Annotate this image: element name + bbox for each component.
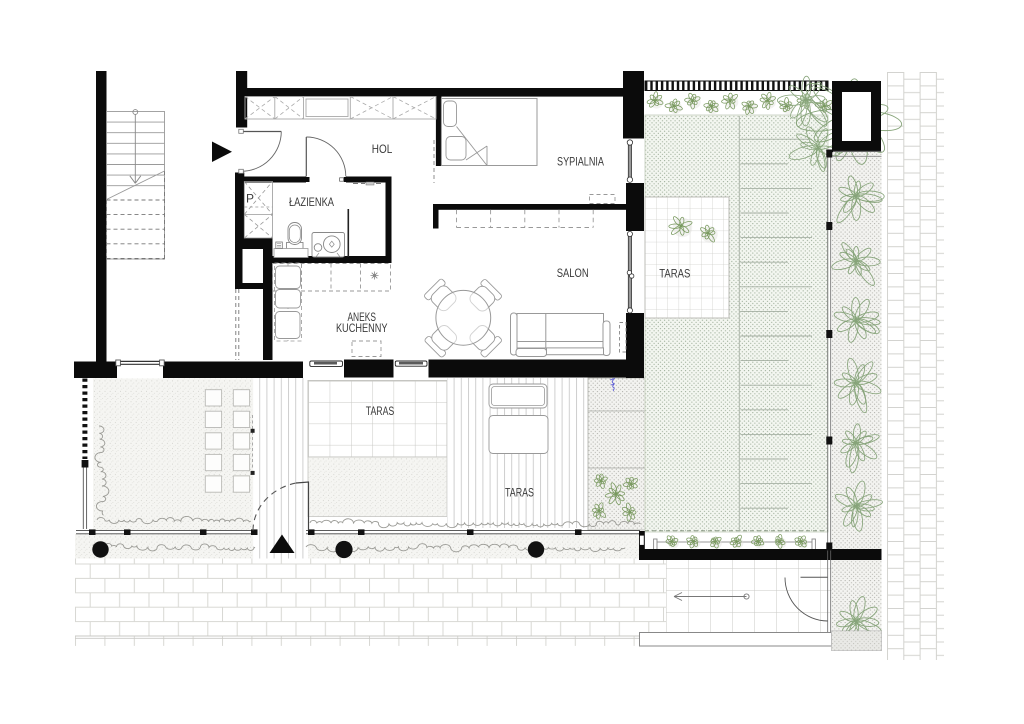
svg-text:ŁAZIENKA: ŁAZIENKA	[289, 195, 334, 209]
svg-text:KUCHENNY: KUCHENNY	[336, 321, 388, 335]
svg-text:SYPIALNIA: SYPIALNIA	[557, 155, 604, 169]
svg-text:TARAS: TARAS	[366, 404, 395, 418]
svg-text:SALON: SALON	[557, 266, 589, 280]
svg-text:HOL: HOL	[372, 142, 393, 156]
svg-text:TARAS: TARAS	[659, 267, 690, 281]
svg-text:P: P	[246, 192, 254, 206]
svg-text:TARAS: TARAS	[505, 486, 534, 500]
